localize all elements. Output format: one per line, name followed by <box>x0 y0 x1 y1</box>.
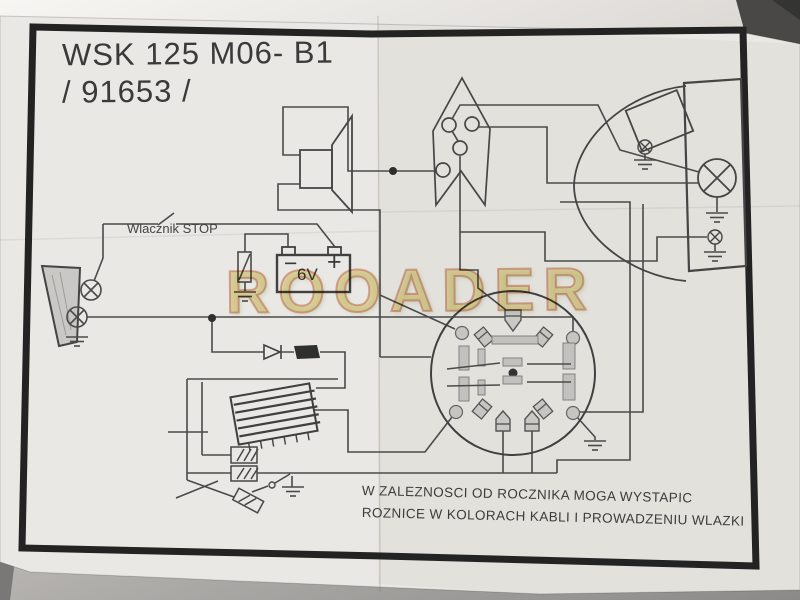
watermark: ROOADER <box>226 254 596 326</box>
stop-switch-label: Wlacznik STOP <box>127 221 218 236</box>
diagram-title: WSK 125 M06- B1 <box>62 35 334 74</box>
diagram-subtitle: / 91653 / <box>62 73 192 110</box>
photographed-wiring-diagram: WSK 125 M06- B1 / 91653 / Wlacznik STOP … <box>0 0 800 600</box>
rectifier-block <box>294 345 320 359</box>
